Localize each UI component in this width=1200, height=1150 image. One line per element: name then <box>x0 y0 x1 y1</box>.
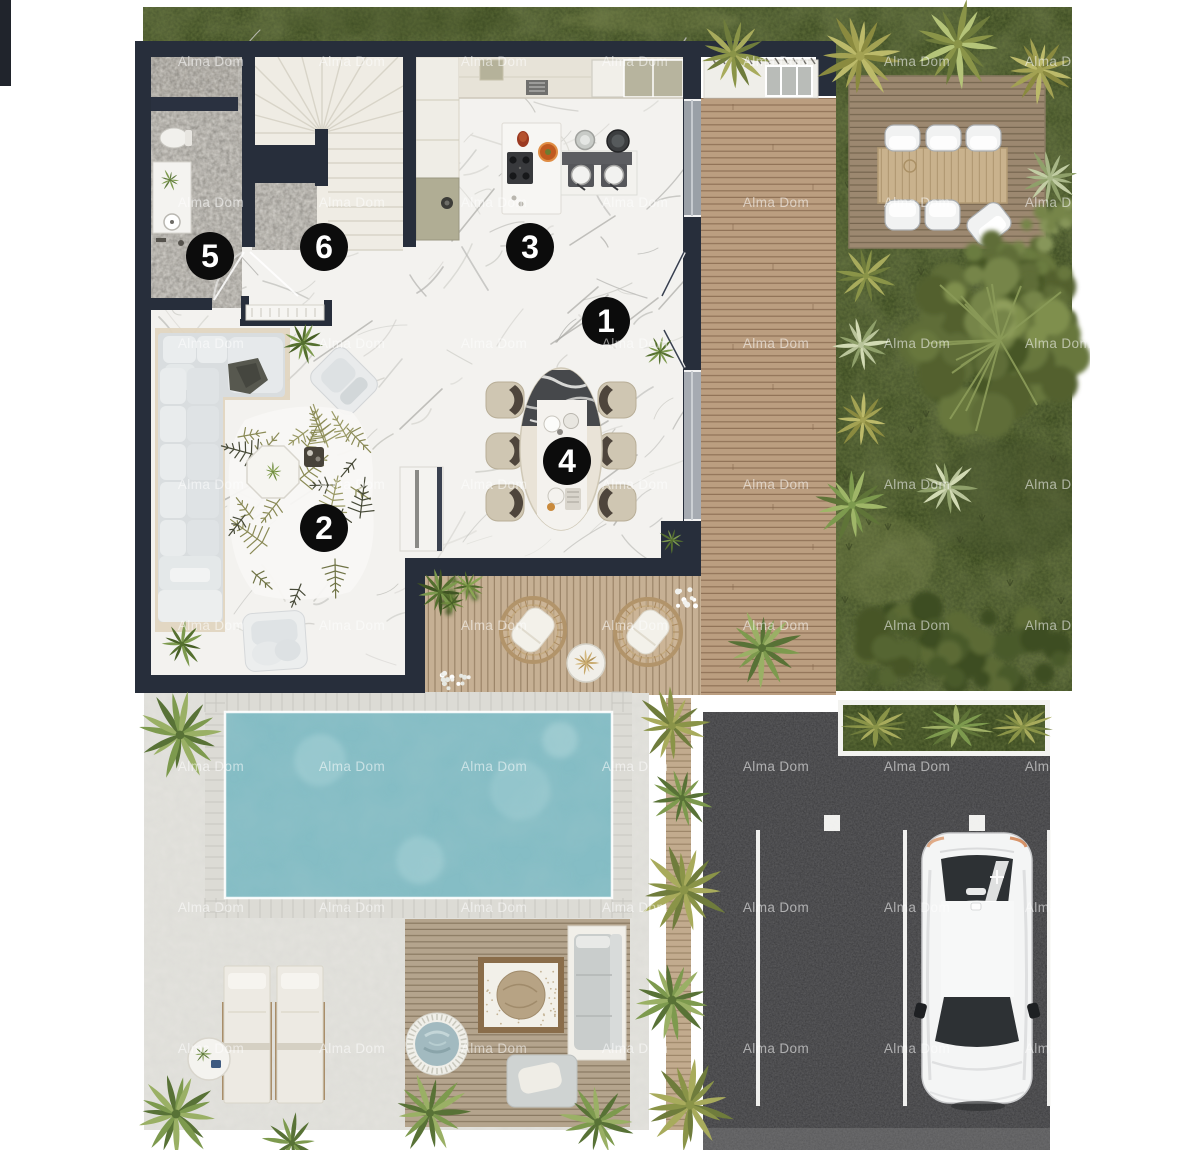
svg-text:Alma Dom: Alma Dom <box>461 618 527 633</box>
svg-text:5: 5 <box>201 238 219 274</box>
svg-text:Alma Dom: Alma Dom <box>178 477 244 492</box>
svg-text:Alma Dom: Alma Dom <box>1025 1041 1091 1056</box>
svg-text:Alma Dom: Alma Dom <box>602 195 668 210</box>
svg-text:Alma Dom: Alma Dom <box>602 759 668 774</box>
svg-text:Alma Dom: Alma Dom <box>178 54 244 69</box>
svg-text:Alma Dom: Alma Dom <box>461 900 527 915</box>
svg-text:Alma Dom: Alma Dom <box>319 54 385 69</box>
svg-text:Alma Dom: Alma Dom <box>1025 54 1091 69</box>
svg-text:Alma Dom: Alma Dom <box>461 759 527 774</box>
svg-text:Alma Dom: Alma Dom <box>461 336 527 351</box>
svg-text:Alma Dom: Alma Dom <box>743 1041 809 1056</box>
svg-text:Alma Dom: Alma Dom <box>461 477 527 492</box>
svg-text:Alma Dom: Alma Dom <box>884 900 950 915</box>
svg-text:3: 3 <box>521 229 539 265</box>
svg-text:Alma Dom: Alma Dom <box>743 195 809 210</box>
svg-text:Alma Dom: Alma Dom <box>37 477 103 492</box>
svg-text:Alma Dom: Alma Dom <box>319 900 385 915</box>
svg-text:Alma Dom: Alma Dom <box>37 618 103 633</box>
svg-text:Alma Dom: Alma Dom <box>884 618 950 633</box>
svg-text:Alma Dom: Alma Dom <box>461 54 527 69</box>
svg-text:6: 6 <box>315 229 333 265</box>
svg-text:Alma Dom: Alma Dom <box>884 1041 950 1056</box>
svg-text:Alma Dom: Alma Dom <box>743 900 809 915</box>
svg-text:Alma Dom: Alma Dom <box>37 336 103 351</box>
svg-text:Alma Dom: Alma Dom <box>743 54 809 69</box>
svg-text:Alma Dom: Alma Dom <box>178 1041 244 1056</box>
svg-text:Alma Dom: Alma Dom <box>1025 195 1091 210</box>
svg-text:Alma Dom: Alma Dom <box>602 900 668 915</box>
svg-text:Alma Dom: Alma Dom <box>743 618 809 633</box>
svg-text:Alma Dom: Alma Dom <box>1025 759 1091 774</box>
svg-text:Alma Dom: Alma Dom <box>884 195 950 210</box>
svg-text:Alma Dom: Alma Dom <box>1025 477 1091 492</box>
svg-text:Alma Dom: Alma Dom <box>602 618 668 633</box>
svg-text:Alma Dom: Alma Dom <box>178 900 244 915</box>
svg-text:Alma Dom: Alma Dom <box>602 477 668 492</box>
svg-text:Alma Dom: Alma Dom <box>884 336 950 351</box>
svg-text:Alma Dom: Alma Dom <box>319 477 385 492</box>
svg-text:Alma Dom: Alma Dom <box>461 1041 527 1056</box>
svg-text:Alma Dom: Alma Dom <box>319 195 385 210</box>
svg-text:Alma Dom: Alma Dom <box>1025 336 1091 351</box>
svg-text:Alma Dom: Alma Dom <box>37 759 103 774</box>
svg-text:Alma Dom: Alma Dom <box>884 54 950 69</box>
svg-text:Alma Dom: Alma Dom <box>37 1041 103 1056</box>
svg-text:Alma Dom: Alma Dom <box>319 1041 385 1056</box>
svg-text:Alma Dom: Alma Dom <box>178 336 244 351</box>
svg-text:Alma Dom: Alma Dom <box>37 54 103 69</box>
svg-text:Alma Dom: Alma Dom <box>37 900 103 915</box>
svg-text:Alma Dom: Alma Dom <box>37 195 103 210</box>
svg-text:Alma Dom: Alma Dom <box>178 759 244 774</box>
svg-text:Alma Dom: Alma Dom <box>178 618 244 633</box>
svg-text:Alma Dom: Alma Dom <box>884 477 950 492</box>
svg-text:Alma Dom: Alma Dom <box>1025 900 1091 915</box>
svg-text:Alma Dom: Alma Dom <box>743 477 809 492</box>
svg-text:Alma Dom: Alma Dom <box>461 195 527 210</box>
svg-text:Alma Dom: Alma Dom <box>602 1041 668 1056</box>
svg-text:Alma Dom: Alma Dom <box>743 759 809 774</box>
svg-text:4: 4 <box>558 443 576 479</box>
svg-text:2: 2 <box>315 510 333 546</box>
svg-text:Alma Dom: Alma Dom <box>178 195 244 210</box>
svg-text:1: 1 <box>597 303 615 339</box>
svg-text:Alma Dom: Alma Dom <box>1025 618 1091 633</box>
svg-text:Alma Dom: Alma Dom <box>319 759 385 774</box>
svg-text:Alma Dom: Alma Dom <box>602 54 668 69</box>
svg-text:Alma Dom: Alma Dom <box>319 618 385 633</box>
svg-text:Alma Dom: Alma Dom <box>743 336 809 351</box>
svg-text:Alma Dom: Alma Dom <box>884 759 950 774</box>
svg-text:Alma Dom: Alma Dom <box>319 336 385 351</box>
svg-text:Alma Dom: Alma Dom <box>602 336 668 351</box>
